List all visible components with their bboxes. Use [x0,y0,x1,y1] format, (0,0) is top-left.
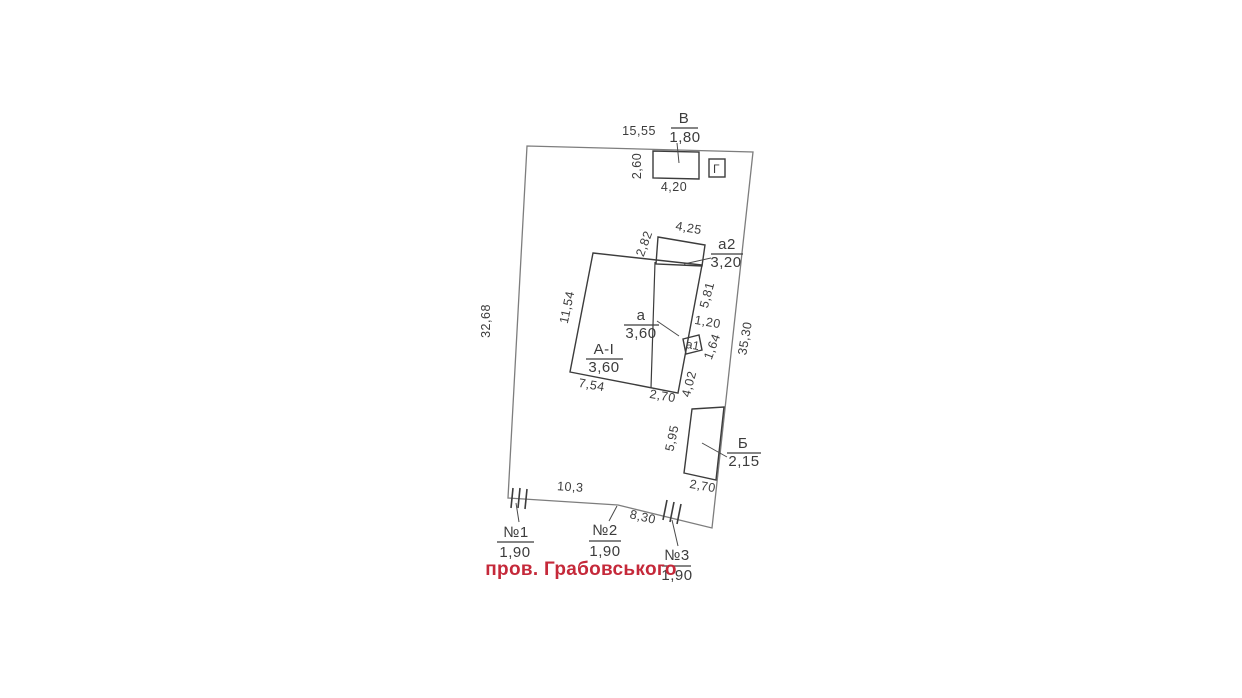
building-b-letter: Б [738,435,748,452]
building-v-height: 1,80 [669,129,700,146]
dim-frontage-right: 8,30 [628,507,657,527]
building-main-letter: А-І [594,341,615,358]
gate-1-label: №1 1,90 [497,524,534,561]
gate-1-number: №1 [503,524,528,541]
porch-a1-letter: а1 [685,337,701,353]
dim-annex-a2-left: 2,82 [633,229,655,259]
building-main-height: 3,60 [588,359,619,376]
dim-building-v-width: 4,20 [661,180,687,194]
leader-annex-a [657,321,679,336]
annex-a2-outline [656,237,705,266]
building-b-height: 2,15 [728,453,759,470]
dim-plot-left: 32,68 [479,304,493,338]
building-main-label: А-І 3,60 [586,341,623,376]
dim-main-right-upper: 5,81 [697,280,717,309]
dim-annex-a2-top: 4,25 [675,219,703,237]
annex-a2-height: 3,20 [710,254,741,271]
dim-plot-right: 35,30 [735,320,755,356]
dim-frontage-left: 10,3 [557,479,584,495]
building-v-outline [653,151,699,179]
dim-building-v-depth: 2,60 [630,153,644,179]
gate-2-width: 1,90 [589,543,620,560]
gate-2-number: №2 [592,522,617,539]
annex-a-letter: а [637,307,646,324]
street-name: пров. Грабовського [485,559,676,580]
dim-porch-depth: 1,20 [694,313,722,331]
dim-main-left: 11,54 [557,290,578,325]
dim-building-b-left: 5,95 [663,424,682,453]
site-plan-page: Г а1 15,55 32,68 35,30 10,3 8,30 2,60 4,… [0,0,1242,698]
leader-annex-a2 [684,258,711,264]
leader-building-b [702,443,727,457]
site-plan-drawing: Г а1 15,55 32,68 35,30 10,3 8,30 2,60 4,… [0,0,1242,698]
leader-gate-2 [609,506,617,521]
dim-plot-top: 15,55 [622,124,656,138]
dim-porch-side: 1,64 [701,332,723,362]
building-b-label: Б 2,15 [727,435,761,470]
building-v-label: В 1,80 [669,110,700,146]
building-v-letter: В [679,110,690,127]
annex-a-height: 3,60 [625,325,656,342]
building-g-letter: Г [713,162,720,176]
leader-building-v [677,143,679,163]
annex-a2-letter: а2 [718,236,736,253]
dim-main-bottom-right: 2,70 [649,387,677,405]
annex-a2-label: а2 3,20 [710,236,743,271]
gate-2-label: №2 1,90 [589,522,621,560]
